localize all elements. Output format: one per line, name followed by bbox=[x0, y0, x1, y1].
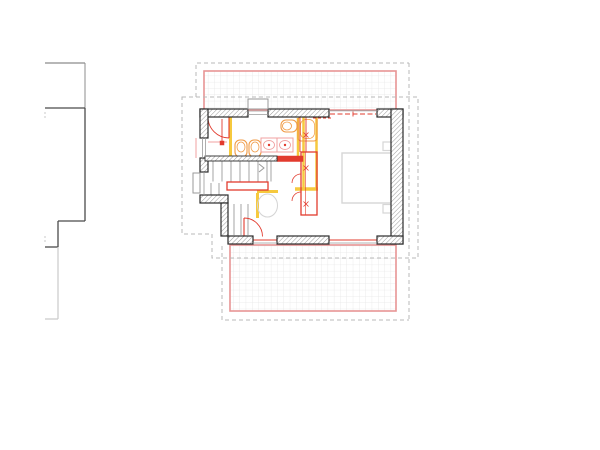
canvas-background bbox=[0, 0, 600, 450]
red-wall-filled bbox=[277, 156, 303, 162]
floor-plan-svg bbox=[0, 0, 600, 450]
red-riser-box bbox=[220, 141, 224, 145]
wall-bottom-2 bbox=[277, 236, 329, 244]
wall-left-1 bbox=[200, 109, 208, 138]
wall-top-2 bbox=[268, 109, 329, 117]
roof-window-box bbox=[248, 99, 268, 109]
sink-drain bbox=[284, 144, 286, 146]
wall-bottom-1 bbox=[228, 236, 253, 244]
wall-right bbox=[391, 109, 403, 244]
wall-bottom-3 bbox=[377, 236, 403, 244]
wall-step-v bbox=[221, 203, 228, 236]
terrace-grid-top bbox=[204, 71, 396, 109]
bed bbox=[342, 153, 392, 203]
sink-drain bbox=[268, 144, 270, 146]
stair-landing-red bbox=[227, 182, 268, 190]
wall-step-h bbox=[200, 195, 228, 203]
wall-divider bbox=[205, 156, 277, 161]
terrace-grid-bottom bbox=[230, 245, 396, 311]
plan-viewport bbox=[0, 0, 600, 450]
left-window-box bbox=[193, 173, 200, 193]
